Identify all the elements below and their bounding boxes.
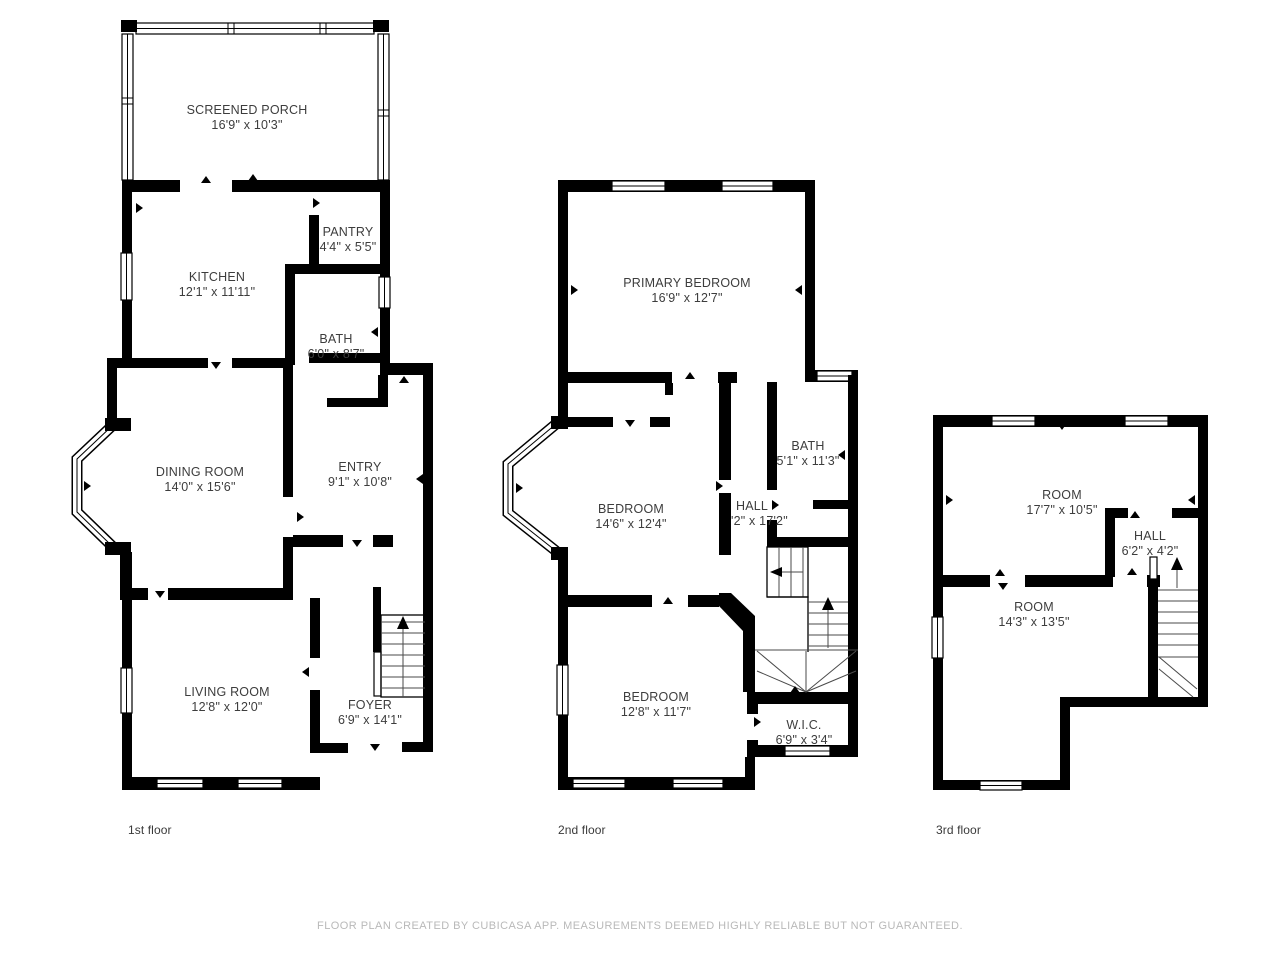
room-name: DINING ROOM <box>156 465 244 480</box>
room-label-primary-bedroom: PRIMARY BEDROOM 16'9" x 12'7" <box>623 276 751 306</box>
second-floor-stairs <box>755 547 858 692</box>
footer-disclaimer: FLOOR PLAN CREATED BY CUBICASA APP. MEAS… <box>0 920 1280 932</box>
first-floor-stairs <box>373 587 425 697</box>
room-dims: 6'9" x 14'1" <box>338 713 402 728</box>
room-label-room-lower: ROOM 14'3" x 13'5" <box>998 600 1069 630</box>
room-name: HALL <box>1134 529 1166 544</box>
room-dims: 14'3" x 13'5" <box>998 615 1069 630</box>
room-name: ROOM <box>1014 600 1054 615</box>
room-dims: 6'0" x 8'7" <box>308 347 365 362</box>
room-label-foyer: FOYER 6'9" x 14'1" <box>338 698 402 728</box>
room-dims: 4'4" x 5'5" <box>320 240 377 255</box>
room-label-wic: W.I.C. 6'9" x 3'4" <box>776 718 833 748</box>
room-name: ENTRY <box>338 460 381 475</box>
room-name: ROOM <box>1042 488 1082 503</box>
room-dims: 5'1" x 11'3" <box>776 454 839 469</box>
room-label-kitchen: KITCHEN 12'1" x 11'11" <box>179 270 255 300</box>
floor-plan-3rd-floor <box>932 415 1208 790</box>
room-name: BATH <box>791 439 824 454</box>
room-label-hall-2nd: HALL '2" x 17'2" <box>731 499 788 529</box>
room-name: LIVING ROOM <box>184 685 270 700</box>
room-dims: 12'1" x 11'11" <box>179 285 255 300</box>
room-label-pantry: PANTRY 4'4" x 5'5" <box>320 225 377 255</box>
floor-caption-1st: 1st floor <box>128 823 172 837</box>
third-floor-walls <box>932 415 1208 790</box>
room-name: BEDROOM <box>598 502 664 517</box>
floor-caption-2nd: 2nd floor <box>558 823 606 837</box>
room-dims: 14'6" x 12'4" <box>595 517 666 532</box>
room-label-bath-1st: BATH 6'0" x 8'7" <box>308 332 365 362</box>
room-label-bedroom-mid: BEDROOM 14'6" x 12'4" <box>595 502 666 532</box>
room-dims: 12'8" x 12'0" <box>191 700 262 715</box>
room-dims: 9'1" x 10'8" <box>328 475 392 490</box>
room-label-bath-2nd: BATH 5'1" x 11'3" <box>776 439 839 469</box>
room-dims: '2" x 17'2" <box>731 514 788 529</box>
room-label-bedroom-lower: BEDROOM 12'8" x 11'7" <box>621 690 691 720</box>
room-name: SCREENED PORCH <box>187 103 308 118</box>
room-dims: 14'0" x 15'6" <box>164 480 235 495</box>
room-name: BEDROOM <box>623 690 689 705</box>
floor-plan-1st-floor <box>77 20 433 790</box>
room-name: FOYER <box>348 698 392 713</box>
room-label-dining-room: DINING ROOM 14'0" x 15'6" <box>156 465 244 495</box>
floor-caption-3rd: 3rd floor <box>936 823 981 837</box>
room-label-hall-3rd: HALL 6'2" x 4'2" <box>1122 529 1179 559</box>
room-dims: 6'2" x 4'2" <box>1122 544 1179 559</box>
room-name: PANTRY <box>323 225 374 240</box>
room-label-entry: ENTRY 9'1" x 10'8" <box>328 460 392 490</box>
room-label-room-upper: ROOM 17'7" x 10'5" <box>1026 488 1097 518</box>
screened-porch-walls <box>121 20 389 180</box>
room-label-living-room: LIVING ROOM 12'8" x 12'0" <box>184 685 270 715</box>
floor-plan-page: SCREENED PORCH 16'9" x 10'3" KITCHEN 12'… <box>0 0 1280 960</box>
room-name: W.I.C. <box>786 718 821 733</box>
room-dims: 17'7" x 10'5" <box>1026 503 1097 518</box>
room-name: HALL <box>736 499 768 514</box>
room-dims: 16'9" x 12'7" <box>651 291 722 306</box>
room-dims: 16'9" x 10'3" <box>211 118 282 133</box>
room-dims: 12'8" x 11'7" <box>621 705 691 720</box>
room-label-screened-porch: SCREENED PORCH 16'9" x 10'3" <box>187 103 308 133</box>
room-name: BATH <box>319 332 352 347</box>
room-dims: 6'9" x 3'4" <box>776 733 833 748</box>
room-name: KITCHEN <box>189 270 245 285</box>
third-floor-stairs <box>1158 557 1198 697</box>
room-name: PRIMARY BEDROOM <box>623 276 751 291</box>
